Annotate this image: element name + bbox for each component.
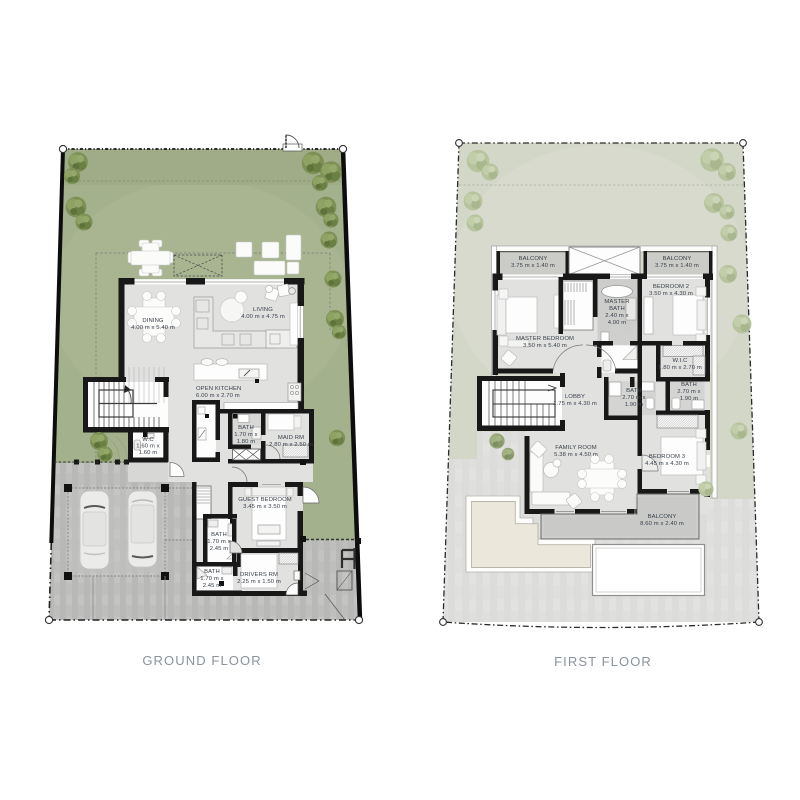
svg-text:4.45 m x 4.30 m: 4.45 m x 4.30 m bbox=[645, 461, 689, 467]
svg-text:W.I.C: W.I.C bbox=[673, 358, 689, 364]
svg-text:BATH: BATH bbox=[204, 569, 220, 575]
svg-text:3.50 m x 4.30 m: 3.50 m x 4.30 m bbox=[649, 291, 693, 297]
svg-text:BEDROOM 2: BEDROOM 2 bbox=[653, 284, 689, 290]
svg-text:1.80 m x 2.70 m: 1.80 m x 2.70 m bbox=[658, 365, 702, 371]
svg-text:BALCONY: BALCONY bbox=[648, 514, 677, 520]
svg-text:8.60 m x 2.40 m: 8.60 m x 2.40 m bbox=[640, 521, 684, 527]
svg-text:LIVING: LIVING bbox=[253, 307, 273, 313]
svg-text:GUEST BEDROOM: GUEST BEDROOM bbox=[238, 497, 292, 503]
svg-text:MASTER: MASTER bbox=[604, 299, 629, 305]
svg-text:BATH: BATH bbox=[626, 388, 642, 394]
svg-text:BATH: BATH bbox=[238, 425, 254, 431]
svg-text:1.60 m: 1.60 m bbox=[139, 450, 158, 456]
svg-text:BEDROOM 3: BEDROOM 3 bbox=[649, 454, 686, 460]
svg-text:2.45 m: 2.45 m bbox=[203, 583, 222, 589]
svg-text:4.00 m x 4.75 m: 4.00 m x 4.75 m bbox=[241, 314, 285, 320]
svg-text:1.80 m: 1.80 m bbox=[237, 439, 256, 445]
svg-text:2.70 m x: 2.70 m x bbox=[622, 395, 645, 401]
svg-text:DINING: DINING bbox=[142, 318, 164, 324]
svg-text:BALCONY: BALCONY bbox=[663, 256, 692, 262]
svg-text:1.75 m x 4.30 m: 1.75 m x 4.30 m bbox=[553, 401, 597, 407]
svg-text:6.00 m x 2.70 m: 6.00 m x 2.70 m bbox=[196, 393, 240, 399]
svg-text:3.75 m x 1.40 m: 3.75 m x 1.40 m bbox=[511, 263, 555, 269]
svg-text:FAMILY ROOM: FAMILY ROOM bbox=[555, 445, 596, 451]
svg-text:3.50 m x 5.40 m: 3.50 m x 5.40 m bbox=[523, 343, 567, 349]
svg-text:BATH: BATH bbox=[681, 382, 697, 388]
svg-text:2.45 m: 2.45 m bbox=[210, 546, 229, 552]
svg-text:LOBBY: LOBBY bbox=[565, 394, 585, 400]
svg-text:1.90 m: 1.90 m bbox=[625, 402, 644, 408]
svg-text:4.00 m x 5.40 m: 4.00 m x 5.40 m bbox=[131, 325, 175, 331]
svg-text:FIRST FLOOR: FIRST FLOOR bbox=[554, 654, 652, 669]
svg-text:1.70 m x: 1.70 m x bbox=[200, 576, 223, 582]
svg-text:W.C: W.C bbox=[142, 437, 154, 443]
svg-text:MAID RM: MAID RM bbox=[278, 435, 304, 441]
svg-text:1.60 m x: 1.60 m x bbox=[136, 444, 159, 450]
svg-text:DRIVERS RM: DRIVERS RM bbox=[240, 572, 278, 578]
svg-text:OPEN KITCHEN: OPEN KITCHEN bbox=[196, 386, 241, 392]
svg-text:MASTER BEDROOM: MASTER BEDROOM bbox=[516, 336, 574, 342]
svg-text:2.25 m x 1.50 m: 2.25 m x 1.50 m bbox=[237, 579, 281, 585]
svg-text:GROUND FLOOR: GROUND FLOOR bbox=[142, 653, 261, 668]
svg-text:1.70 m x: 1.70 m x bbox=[234, 432, 257, 438]
svg-text:1.70 m x: 1.70 m x bbox=[207, 539, 230, 545]
svg-text:2.40 m x: 2.40 m x bbox=[605, 313, 628, 319]
svg-text:2.80 m x 2.50 m: 2.80 m x 2.50 m bbox=[269, 442, 313, 448]
svg-text:BATH: BATH bbox=[211, 532, 227, 538]
svg-text:2.70 m x: 2.70 m x bbox=[677, 389, 700, 395]
svg-text:BATH: BATH bbox=[609, 306, 625, 312]
svg-text:5.38 m x 4.50 m: 5.38 m x 4.50 m bbox=[554, 452, 598, 458]
svg-text:3.75 m x 1.40 m: 3.75 m x 1.40 m bbox=[655, 263, 699, 269]
svg-text:1.90 m: 1.90 m bbox=[680, 396, 699, 402]
svg-text:4.00 m: 4.00 m bbox=[608, 320, 627, 326]
svg-text:BALCONY: BALCONY bbox=[519, 256, 548, 262]
svg-text:3.45 m x 3.50 m: 3.45 m x 3.50 m bbox=[243, 504, 287, 510]
